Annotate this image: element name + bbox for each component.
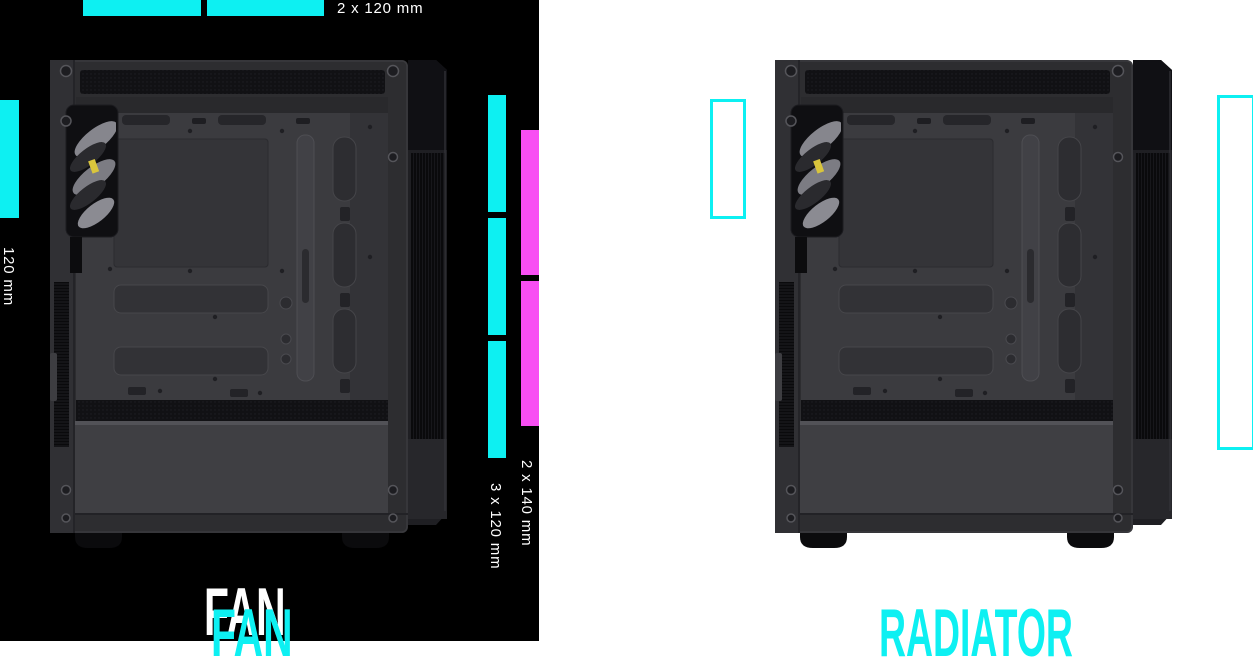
mount-slot-segment	[521, 281, 539, 426]
mount-slot-segment	[488, 341, 506, 458]
top-fan-slots	[83, 0, 324, 16]
mount-slot-segment	[488, 218, 506, 335]
mount-slot-segment	[488, 95, 506, 212]
mount-slot-segment	[521, 130, 539, 275]
radiator-title-text: RADIATOR	[879, 599, 1073, 658]
mount-slot-segment	[207, 0, 325, 16]
fan-case-illustration	[50, 57, 450, 550]
front-fan-slots-140mm	[521, 130, 539, 426]
fan-title-text: FAN	[211, 599, 293, 658]
front-fan-slots-120mm	[488, 95, 506, 458]
rear-fan-slot	[0, 100, 19, 218]
rear-fan-label: 120 mm	[0, 247, 17, 306]
rear-radiator-slot	[710, 99, 746, 219]
top-fan-label: 2 x 120 mm	[337, 0, 423, 17]
front-fan-label-140mm: 2 x 140 mm	[518, 460, 535, 546]
front-radiator-slot	[1217, 95, 1253, 450]
mount-slot-segment	[83, 0, 201, 16]
mount-slot-segment	[0, 100, 19, 218]
radiator-case-illustration	[775, 57, 1175, 550]
front-fan-label-120mm: 3 x 120 mm	[487, 483, 504, 569]
stage: 2 x 120 mm 120 mm 2 x 140 mm 3 x 120 mm …	[0, 0, 1253, 658]
